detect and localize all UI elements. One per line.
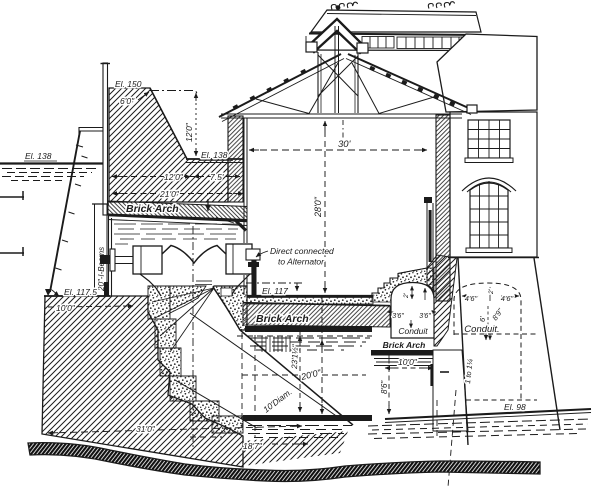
svg-text:3'6": 3'6" xyxy=(392,313,404,320)
svg-text:31'0": 31'0" xyxy=(136,424,156,434)
svg-text:7.5': 7.5' xyxy=(210,172,224,182)
svg-text:10'0": 10'0" xyxy=(56,303,76,313)
svg-text:28'0": 28'0" xyxy=(313,196,323,218)
svg-text:3'6": 3'6" xyxy=(419,313,431,320)
svg-text:6': 6' xyxy=(478,316,487,322)
svg-text:6'0": 6'0" xyxy=(120,96,135,106)
svg-text:Conduit.: Conduit. xyxy=(464,324,499,335)
svg-text:Direct connected: Direct connected xyxy=(270,246,334,256)
svg-text:Conduit: Conduit xyxy=(398,326,428,336)
svg-text:4'6": 4'6" xyxy=(501,294,514,303)
svg-text:21'0": 21'0" xyxy=(159,189,180,199)
svg-text:El. 117.5: El. 117.5 xyxy=(64,287,97,297)
svg-text:10'0": 10'0" xyxy=(398,357,418,367)
svg-text:El. 138: El. 138 xyxy=(201,150,228,160)
svg-text:El. 98: El. 98 xyxy=(504,402,526,412)
svg-text:2': 2' xyxy=(488,288,495,295)
svg-text:Brick Arch: Brick Arch xyxy=(126,203,179,215)
svg-text:2': 2' xyxy=(403,292,410,299)
svg-text:El. 117: El. 117 xyxy=(262,286,288,296)
svg-text:30': 30' xyxy=(338,139,352,150)
svg-text:12'0": 12'0" xyxy=(164,172,184,182)
svg-text:12'0": 12'0" xyxy=(184,122,194,142)
svg-text:8'6": 8'6" xyxy=(380,380,389,394)
svg-text:18'7": 18'7" xyxy=(243,441,263,451)
svg-text:23'1½": 23'1½" xyxy=(290,343,300,370)
svg-text:Brick Arch: Brick Arch xyxy=(256,313,309,325)
svg-text:to Alternator: to Alternator xyxy=(278,257,325,267)
svg-text:Brick Arch: Brick Arch xyxy=(383,340,426,350)
svg-text:El. 150: El. 150 xyxy=(115,79,142,89)
svg-text:4'6": 4'6" xyxy=(465,294,478,303)
svg-text:El. 138: El. 138 xyxy=(25,151,52,161)
